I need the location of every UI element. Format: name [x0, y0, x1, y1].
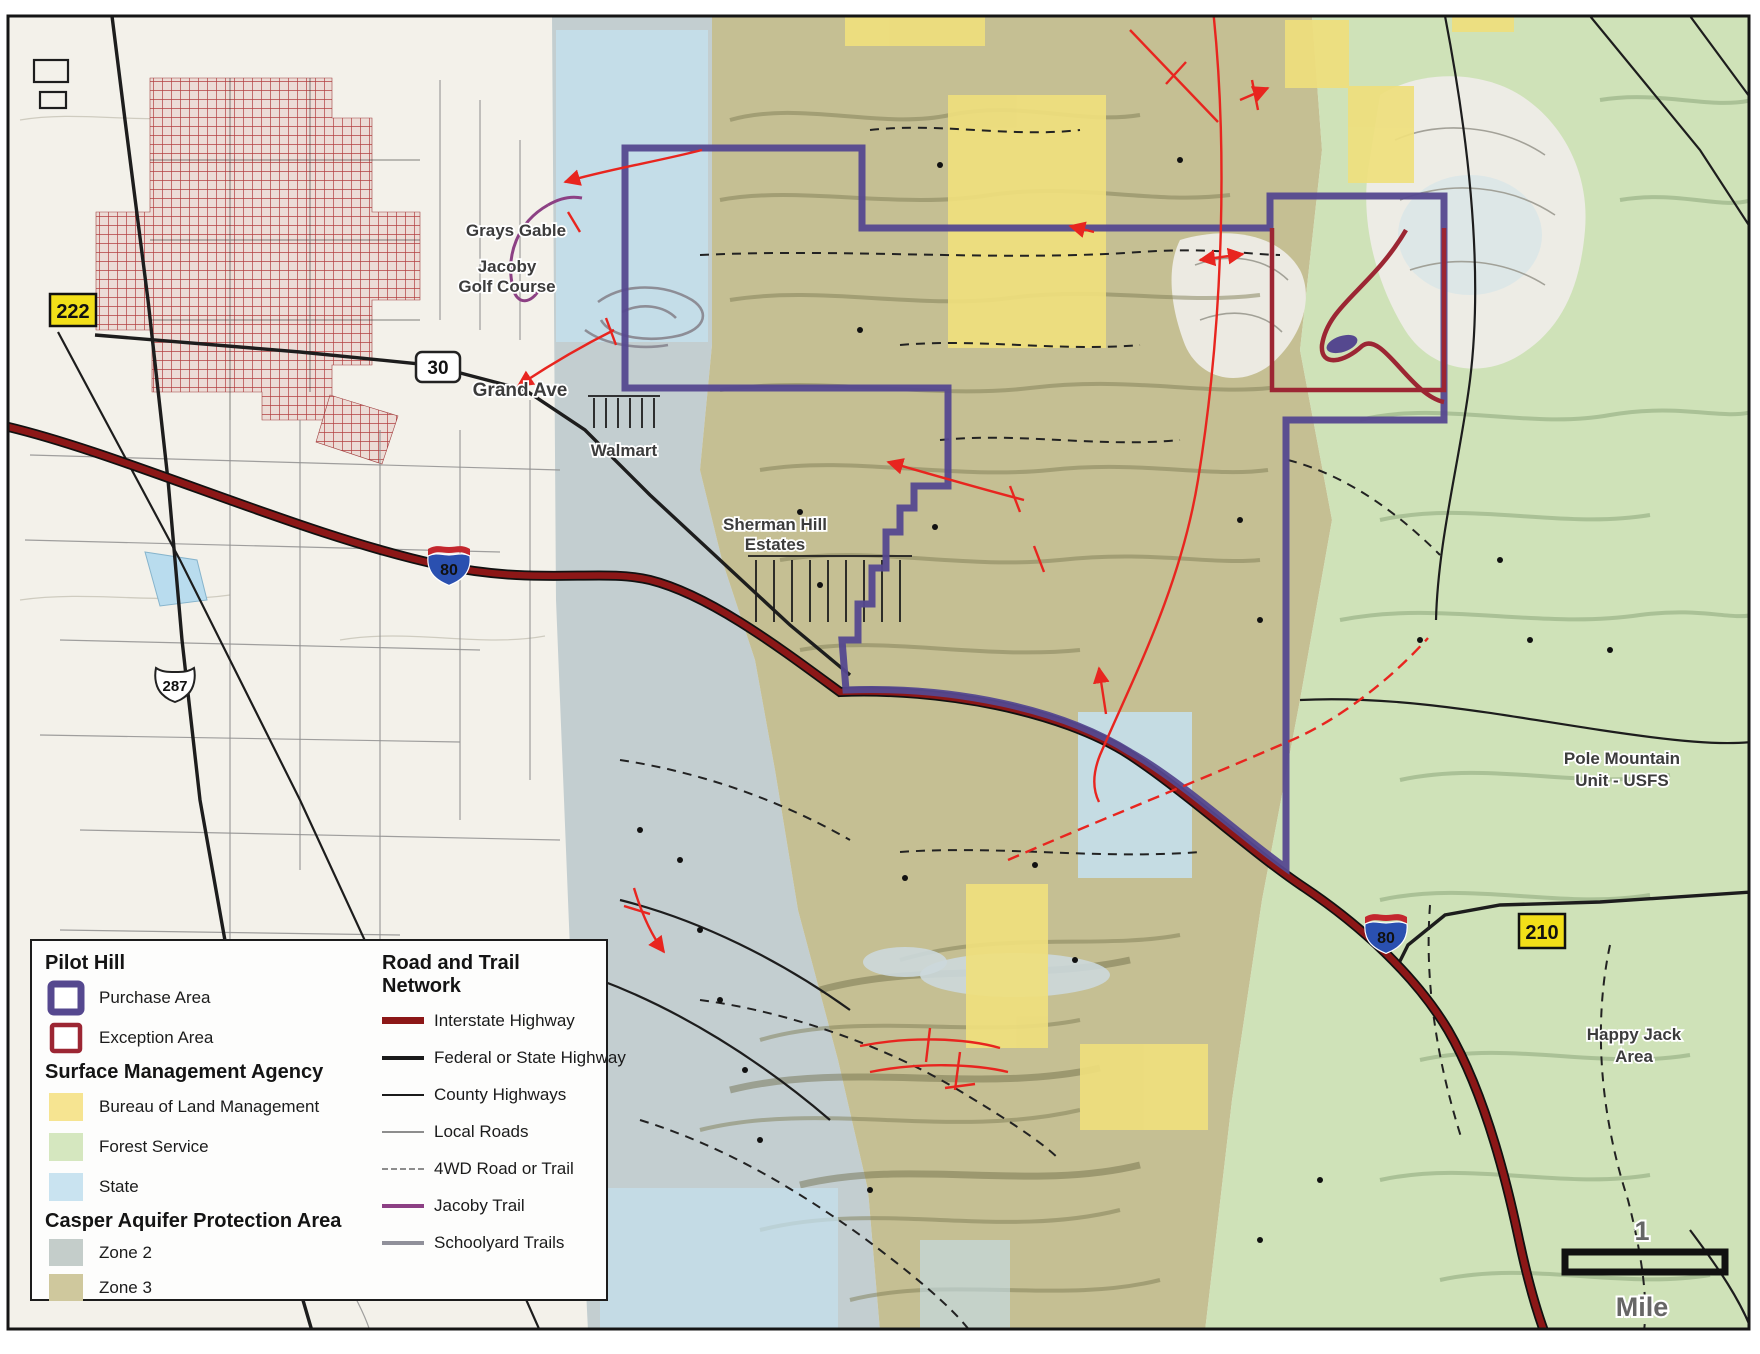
legend-label: Forest Service: [99, 1137, 209, 1157]
legend-label: Local Roads: [434, 1122, 529, 1142]
zone2-swatch: [45, 1239, 87, 1267]
legend: Pilot Hill Purchase Area Exception Area …: [30, 939, 608, 1301]
legend-label: Bureau of Land Management: [99, 1097, 319, 1117]
svg-text:222: 222: [56, 301, 89, 323]
shield-us30: 30: [416, 352, 460, 382]
label-grays-gable: Grays Gable: [466, 221, 566, 240]
legend-label: 4WD Road or Trail: [434, 1159, 574, 1179]
legend-label: Interstate Highway: [434, 1011, 575, 1031]
4wd-line-sample: [382, 1168, 424, 1170]
federal-highway-line-sample: [382, 1056, 424, 1060]
scale-unit: Mile: [1616, 1292, 1669, 1322]
label-walmart: Walmart: [591, 441, 658, 460]
exception-area-swatch: [45, 1019, 87, 1057]
legend-left-column: Pilot Hill Purchase Area Exception Area …: [45, 947, 375, 1307]
legend-label: Exception Area: [99, 1028, 213, 1048]
legend-item-schoolyard-trails: Schoolyard Trails: [382, 1224, 604, 1261]
legend-label: Zone 3: [99, 1278, 152, 1298]
legend-item-local-roads: Local Roads: [382, 1113, 604, 1150]
label-jacoby-golf-2: Golf Course: [458, 277, 555, 296]
label-jacoby-golf-1: Jacoby: [478, 257, 537, 276]
zone3-swatch: [45, 1274, 87, 1302]
legend-heading-capa: Casper Aquifer Protection Area: [45, 1210, 375, 1233]
legend-item-zone2: Zone 2: [45, 1237, 375, 1269]
county-highway-line-sample: [382, 1094, 424, 1096]
schoolyard-trails-line-sample: [382, 1241, 424, 1245]
label-sherman-hill-2: Estates: [745, 535, 805, 554]
label-grand-ave: Grand Ave: [473, 380, 568, 401]
forest-service-swatch: [45, 1132, 87, 1162]
legend-item-4wd: 4WD Road or Trail: [382, 1150, 604, 1187]
legend-label: Schoolyard Trails: [434, 1233, 564, 1253]
legend-item-interstate: Interstate Highway: [382, 1002, 604, 1039]
label-happy-jack-2: Area: [1615, 1047, 1653, 1066]
legend-item-federal-highway: Federal or State Highway: [382, 1039, 604, 1076]
shield-wy222: 222: [50, 294, 96, 326]
state-swatch: [45, 1172, 87, 1202]
legend-heading-pilot-hill: Pilot Hill: [45, 952, 375, 975]
legend-label: State: [99, 1177, 139, 1197]
legend-item-zone3: Zone 3: [45, 1272, 375, 1304]
svg-text:80: 80: [440, 562, 458, 579]
legend-item-forest-service: Forest Service: [45, 1128, 375, 1165]
legend-label: County Highways: [434, 1085, 566, 1105]
shield-wy210: 210: [1519, 914, 1565, 948]
label-sherman-hill-1: Sherman Hill: [723, 515, 827, 534]
label-happy-jack-1: Happy Jack: [1587, 1025, 1682, 1044]
legend-right-column: Road and Trail Network Interstate Highwa…: [382, 947, 604, 1261]
jacoby-trail-line-sample: [382, 1204, 424, 1208]
legend-label: Federal or State Highway: [434, 1048, 626, 1068]
interstate-line-sample: [382, 1017, 424, 1024]
map-page: 1 Mile 222 30 287 80 210 Grays Gable: [0, 0, 1760, 1354]
legend-item-state: State: [45, 1168, 375, 1205]
legend-heading-roads: Road and Trail Network: [382, 952, 604, 998]
purchase-area-swatch: [45, 979, 87, 1017]
svg-text:210: 210: [1525, 922, 1558, 944]
scale-value: 1: [1634, 1216, 1649, 1246]
label-pole-mountain-1: Pole Mountain: [1564, 749, 1680, 768]
local-road-line-sample: [382, 1131, 424, 1133]
label-pole-mountain-2: Unit - USFS: [1575, 771, 1669, 790]
legend-item-purchase-area: Purchase Area: [45, 979, 375, 1016]
blm-swatch: [45, 1092, 87, 1122]
legend-item-jacoby-trail: Jacoby Trail: [382, 1187, 604, 1224]
legend-heading-sma: Surface Management Agency: [45, 1061, 375, 1084]
svg-text:30: 30: [427, 358, 448, 379]
legend-label: Zone 2: [99, 1243, 152, 1263]
legend-item-blm: Bureau of Land Management: [45, 1088, 375, 1125]
legend-item-county-highways: County Highways: [382, 1076, 604, 1113]
svg-text:287: 287: [162, 678, 187, 695]
legend-label: Purchase Area: [99, 988, 211, 1008]
legend-label: Jacoby Trail: [434, 1196, 525, 1216]
legend-item-exception-area: Exception Area: [45, 1019, 375, 1056]
